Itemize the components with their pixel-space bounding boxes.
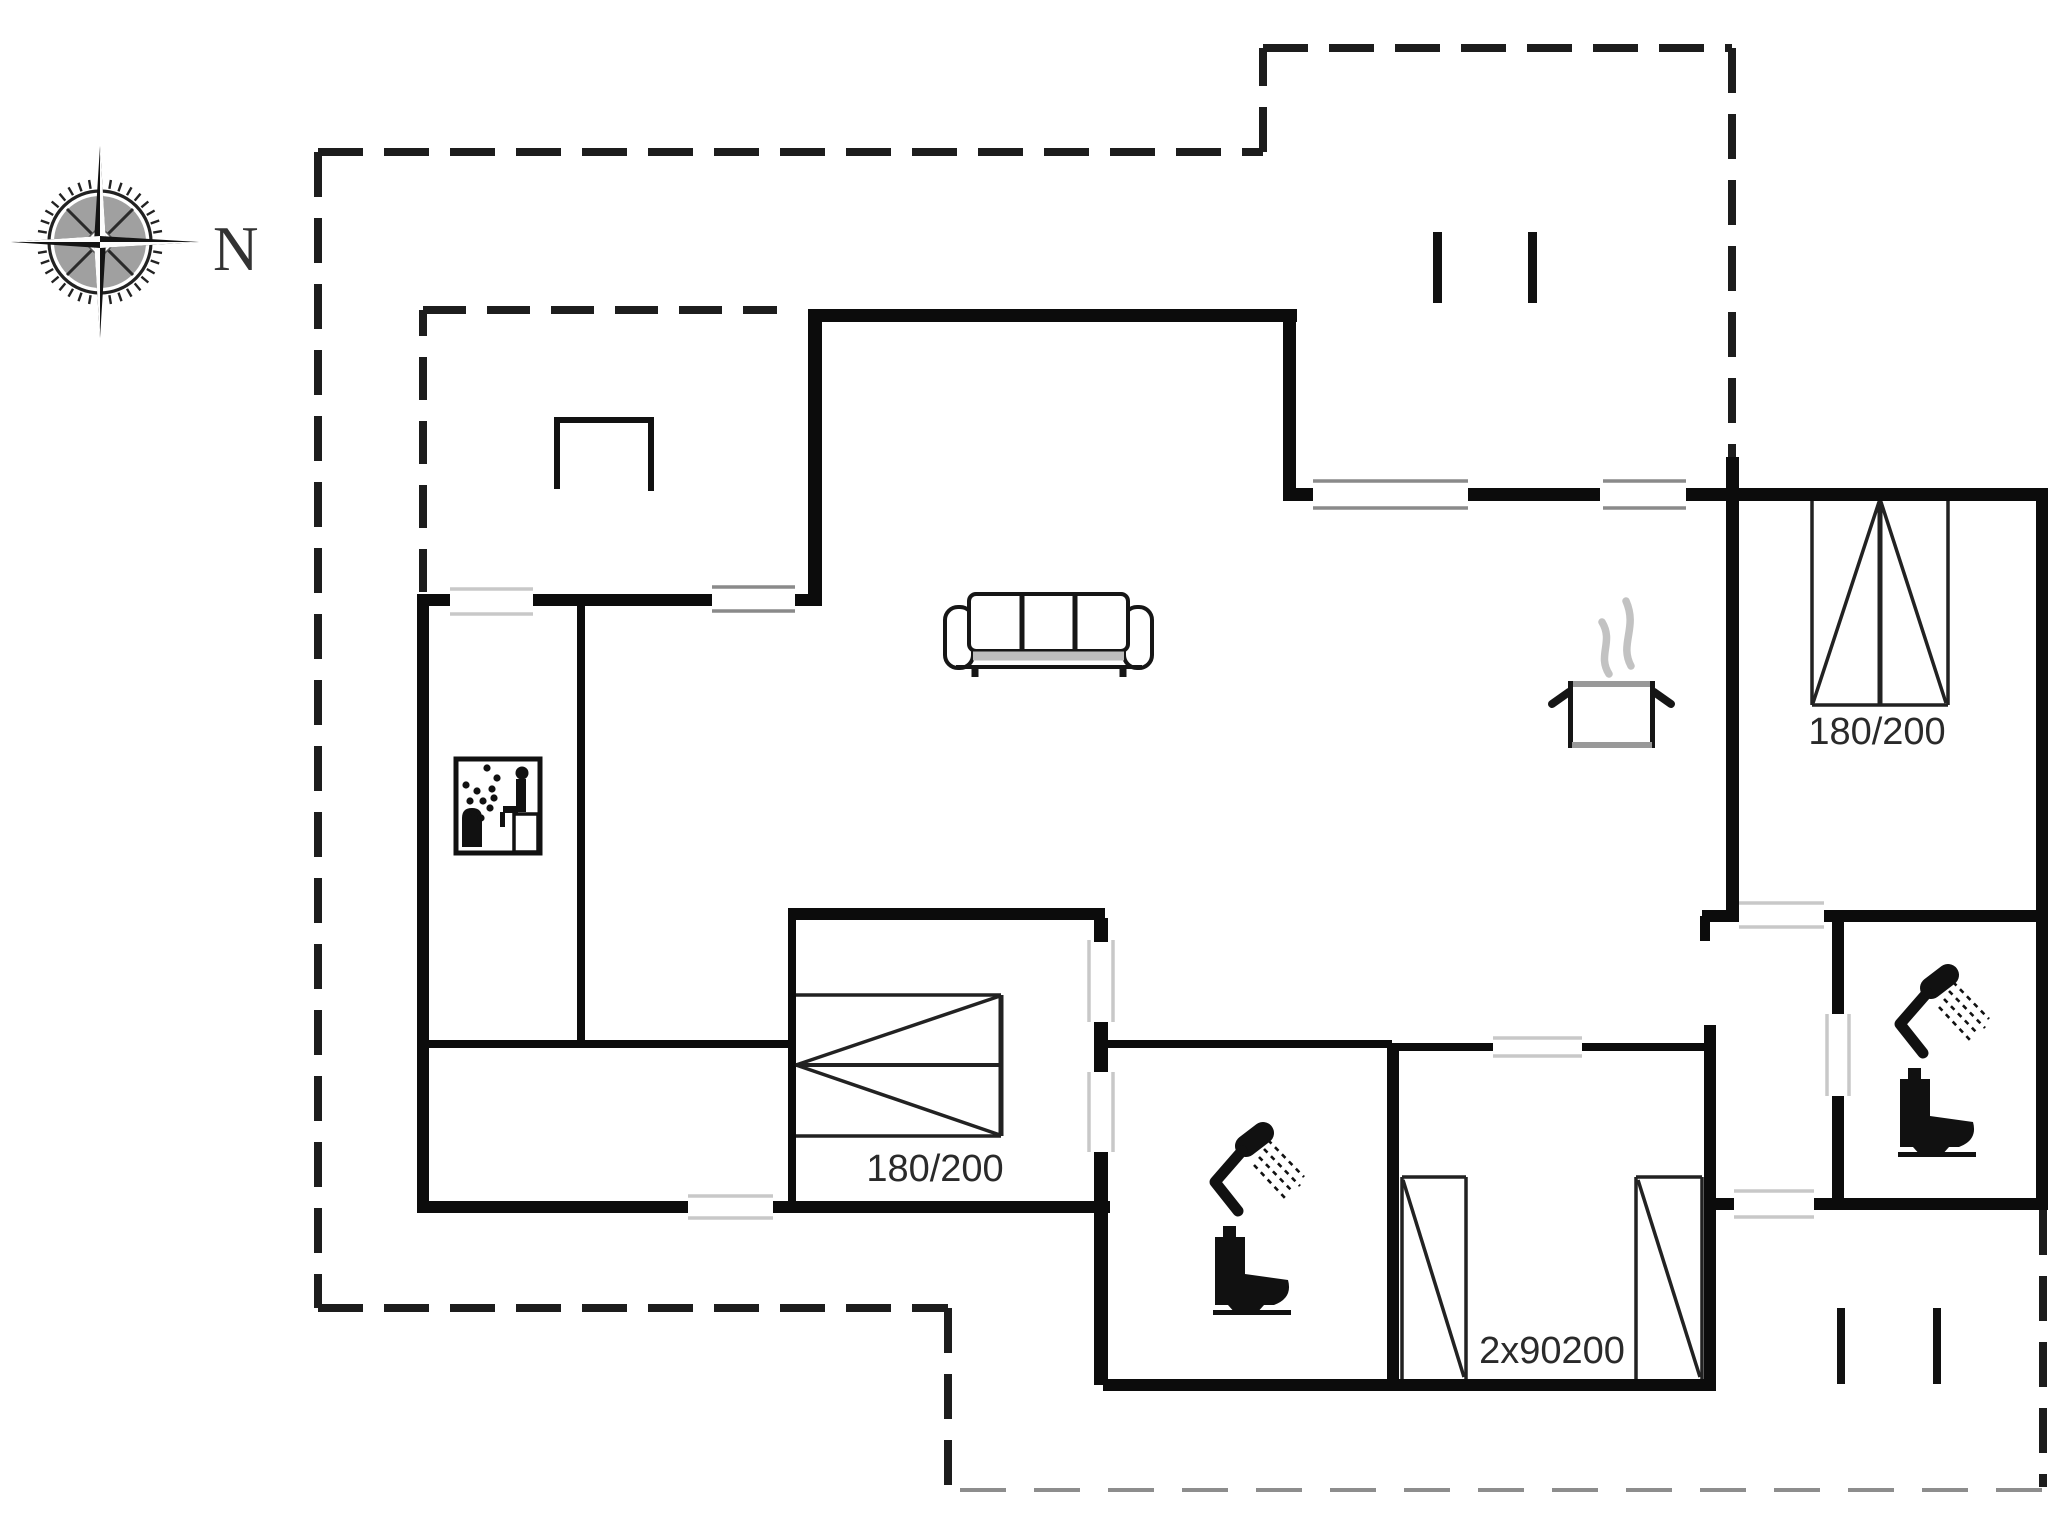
svg-text:2x90200: 2x90200 bbox=[1479, 1330, 1625, 1372]
svg-text:N: N bbox=[213, 214, 259, 284]
svg-text:180/200: 180/200 bbox=[1808, 711, 1945, 753]
svg-text:180/200: 180/200 bbox=[866, 1148, 1003, 1190]
